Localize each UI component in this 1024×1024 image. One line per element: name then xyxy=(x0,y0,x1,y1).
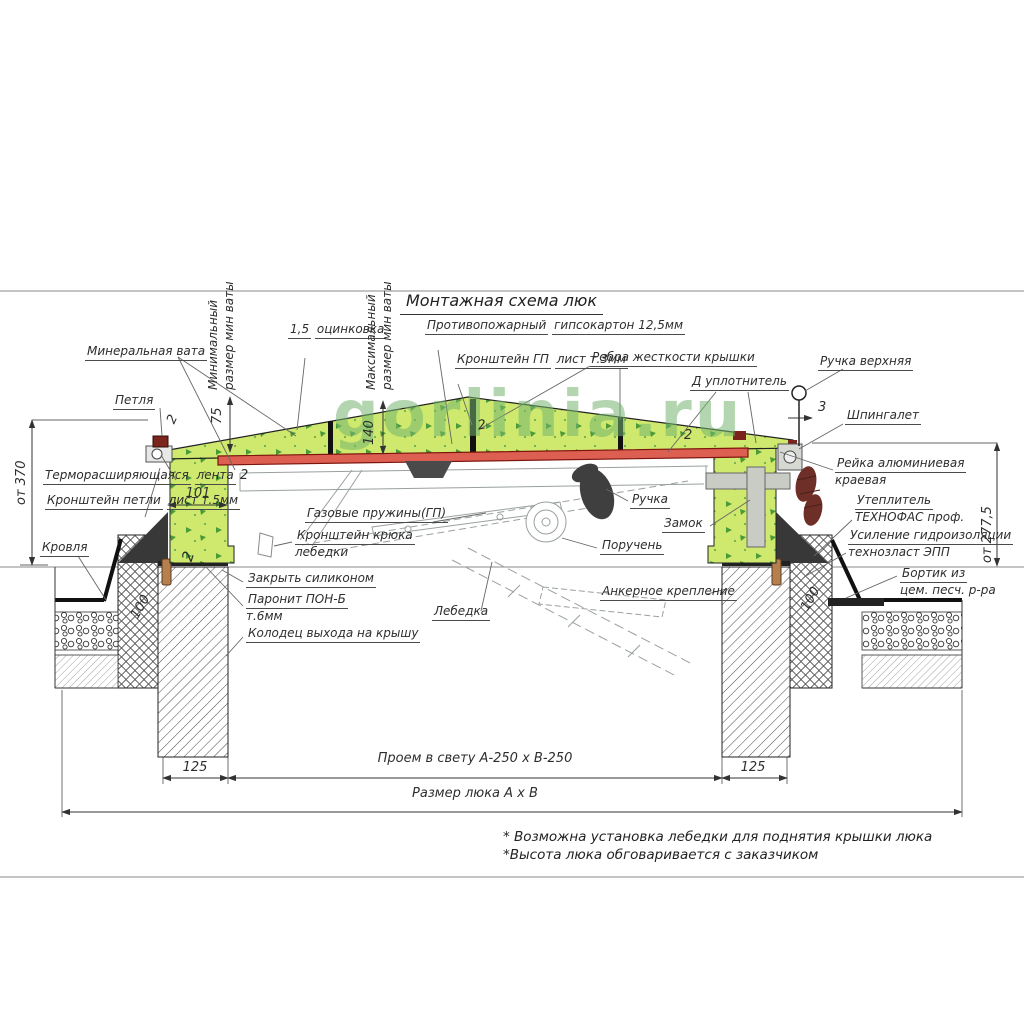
label-mineral-wool: Минеральная вата xyxy=(85,344,207,361)
label-silicone: Закрыть силиконом xyxy=(246,571,376,588)
hinge-assembly xyxy=(146,436,172,462)
label-zinc-sheet: 1,5 оцинковка xyxy=(288,322,368,339)
gravel-layer-right xyxy=(862,612,962,650)
label-min-wool-size: Минимальный размер мин ваты xyxy=(206,292,237,390)
gravel-layer-left xyxy=(55,612,118,650)
label-lock: Замок xyxy=(662,516,705,533)
dim-text-140: 140 xyxy=(362,420,379,445)
dim-text-opening: Проем в свету А-250 х В-250 xyxy=(330,751,620,768)
page-title: Монтажная схема люк xyxy=(400,291,595,315)
label-technofas-insulation: Утеплитель ТЕХНОФАС проф. xyxy=(855,493,964,525)
dim-text-hatch-size: Размер люка А х В xyxy=(375,786,575,803)
label-hinge: Петля xyxy=(113,393,155,410)
note-height-agreement: *Высота люка обговаривается с заказчиком xyxy=(503,847,818,865)
label-fireproof-gypsum: Противопожарный гипсокартон 12,5мм xyxy=(425,318,685,335)
hinge-pin xyxy=(152,449,162,459)
drawing-canvas: gorlinia.ru Монтажная схема люк Противоп… xyxy=(0,0,1024,1024)
lock-bar-vertical xyxy=(747,467,765,547)
label-thermo-tape: Терморасширяющаяся лента xyxy=(43,468,236,485)
label-roof-well: Колодец выхода на крышу xyxy=(246,626,420,643)
label-roofing: Кровля xyxy=(40,540,89,557)
top-handle-ring xyxy=(792,386,806,400)
label-winch: Лебедка xyxy=(432,604,490,621)
label-cover-ribs: Ребра жесткости крышки xyxy=(590,350,757,367)
dim-text-3: 3 xyxy=(818,400,826,417)
label-winch-hook-bracket: Кронштейн крюка лебедки xyxy=(295,528,415,560)
label-max-wool-size: Максимальный размер мин ваты xyxy=(364,292,395,390)
dim-text-101: 101 xyxy=(180,486,216,503)
label-paronite: Паронит ПОН-Б т.6мм xyxy=(246,592,348,624)
dim-text-125-left: 125 xyxy=(170,760,220,777)
dim-text-277: от 277,5 xyxy=(980,563,1024,580)
dim-text-2-frame: 2 xyxy=(240,468,248,485)
dim-text-370: от 370 xyxy=(14,505,79,522)
note-winch-option: * Возможна установка лебедки для подняти… xyxy=(503,829,932,847)
dim-text-2-right: 2 xyxy=(684,428,692,445)
lower-handle-brown xyxy=(792,464,825,527)
dim-text-125-right: 125 xyxy=(728,760,778,777)
label-handrail: Поручень xyxy=(600,538,664,555)
label-seal: Д уплотнитель xyxy=(690,374,789,391)
label-anchor-fixing: Анкерное крепление xyxy=(600,584,737,601)
dim-text-75: 75 xyxy=(210,407,227,424)
label-aluminium-rail: Рейка алюминиевая краевая xyxy=(835,456,966,488)
cover-bracket xyxy=(405,461,452,478)
label-shpingalet: Шпингалет xyxy=(845,408,921,425)
label-top-handle: Ручка верхняя xyxy=(818,354,913,371)
label-gas-springs: Газовые пружины(ГП) xyxy=(305,506,448,523)
label-handle: Ручка xyxy=(630,492,670,509)
hinge-block xyxy=(153,436,168,447)
right-curb xyxy=(708,442,776,563)
